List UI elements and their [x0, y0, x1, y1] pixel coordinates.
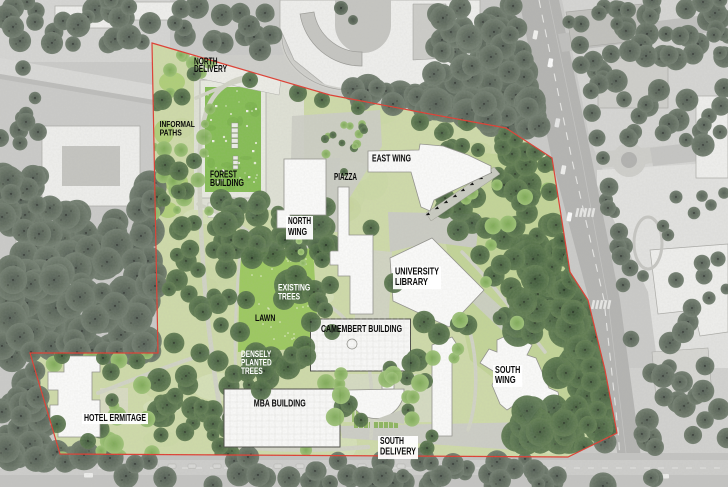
svg-text:TREES: TREES [241, 366, 263, 376]
svg-text:PATHS: PATHS [160, 128, 182, 138]
svg-text:TREES: TREES [278, 292, 300, 302]
svg-text:CAMEMBERT BUILDING: CAMEMBERT BUILDING [321, 323, 402, 335]
svg-text:HOTEL ERMITAGE: HOTEL ERMITAGE [84, 413, 146, 424]
svg-text:DELIVERY: DELIVERY [194, 64, 227, 75]
svg-text:UNIVERSITY: UNIVERSITY [395, 266, 439, 277]
svg-text:BUILDING: BUILDING [210, 178, 244, 189]
svg-text:DELIVERY: DELIVERY [380, 447, 416, 458]
svg-text:WING: WING [495, 375, 516, 386]
svg-text:PIAZZA: PIAZZA [334, 172, 357, 183]
svg-text:LAWN: LAWN [255, 313, 275, 323]
svg-text:WING: WING [288, 227, 307, 238]
svg-text:EAST WING: EAST WING [372, 153, 411, 164]
svg-text:SOUTH: SOUTH [380, 436, 404, 447]
svg-text:NORTH: NORTH [288, 216, 311, 227]
svg-text:LIBRARY: LIBRARY [395, 277, 428, 288]
svg-text:MBA BUILDING: MBA BUILDING [254, 399, 306, 410]
